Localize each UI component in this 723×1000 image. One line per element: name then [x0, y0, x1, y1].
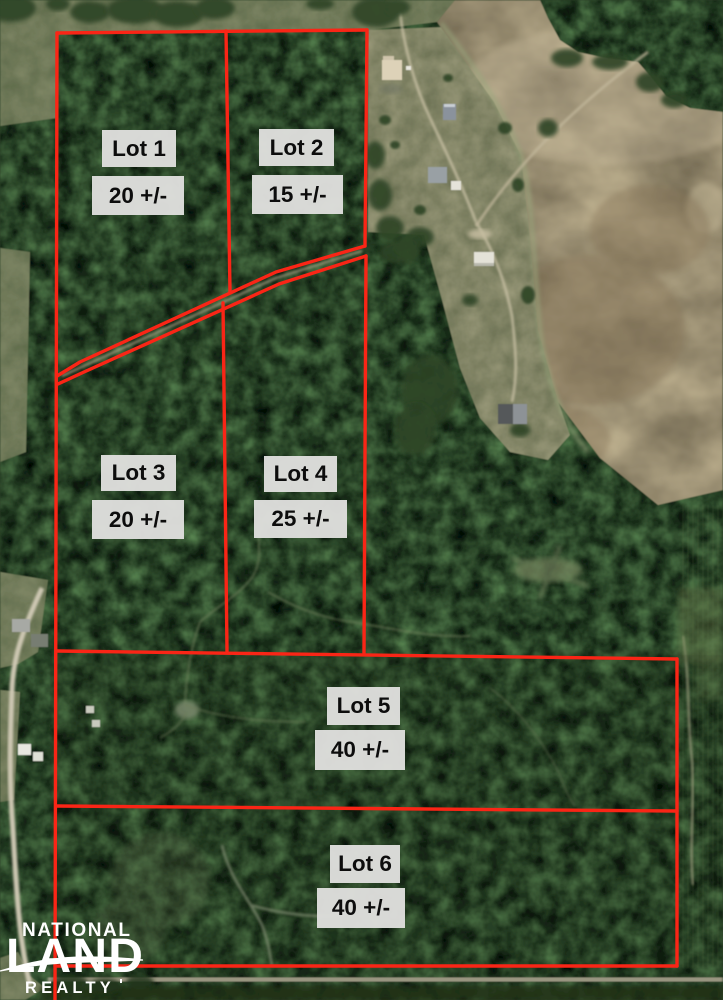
svg-text:REALTY: REALTY: [25, 979, 115, 997]
svg-text:LAND: LAND: [6, 930, 144, 983]
